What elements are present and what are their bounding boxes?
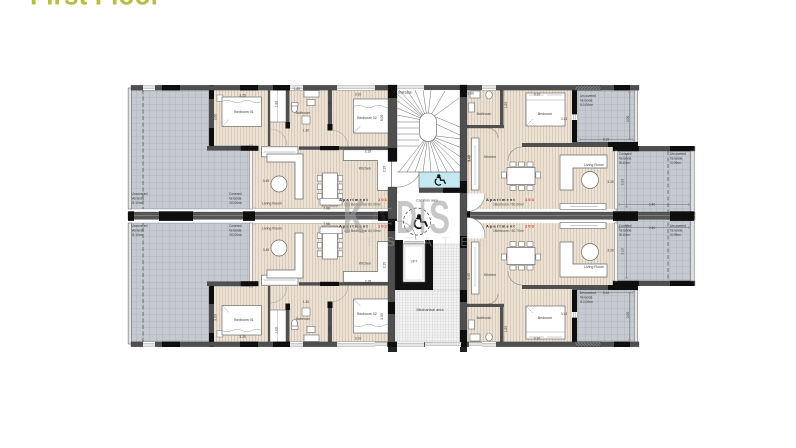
svg-text:3.10: 3.10 [355,337,362,341]
svg-text:Bedroom 01: Bedroom 01 [234,110,254,114]
svg-text:/30.00m²: /30.00m² [229,201,243,205]
svg-text:/8.10m²: /8.10m² [619,161,631,165]
svg-text:3.13: 3.13 [621,179,625,186]
svg-text:5.00: 5.00 [380,115,384,122]
svg-text:Bathroom: Bathroom [477,112,492,116]
svg-text:3.10: 3.10 [603,291,610,295]
svg-text:/4.10m²: /4.10m² [132,233,144,237]
svg-text:/3.99m²: /3.99m² [670,161,682,165]
svg-text:Bedroom 01: Bedroom 01 [234,318,254,322]
svg-text:Uncovered: Uncovered [132,192,148,196]
svg-text:7.98: 7.98 [323,222,330,226]
svg-text:/8.10m²: /8.10m² [619,233,631,237]
svg-text:/10.00m²: /10.00m² [580,300,594,304]
svg-text:Bedroom: Bedroom [538,112,553,116]
svg-text:Covered: Covered [229,224,242,228]
svg-text:1.80: 1.80 [275,101,279,108]
svg-text:Veranda: Veranda [229,228,241,232]
svg-text:Kitchen: Kitchen [484,273,496,277]
svg-text:7.98: 7.98 [323,206,330,210]
svg-text:3.40: 3.40 [649,226,656,230]
svg-text:Kitchen: Kitchen [359,167,371,171]
svg-text:3.40: 3.40 [468,155,472,162]
svg-text:Living Room: Living Room [584,163,604,167]
svg-text:Veranda: Veranda [580,295,592,299]
svg-text:Veranda: Veranda [229,196,241,200]
svg-text:2.35: 2.35 [365,279,372,283]
svg-text:A p a r t m e n t: A p a r t m e n t [486,224,515,229]
svg-text:2.35: 2.35 [365,149,372,153]
svg-text:/3.99m²: /3.99m² [670,233,682,237]
svg-text:1.80: 1.80 [504,326,508,333]
svg-text:3.00: 3.00 [626,312,630,319]
svg-text:3.10: 3.10 [603,138,610,142]
svg-text:2.20: 2.20 [383,166,387,173]
svg-text:1Bedroom / 50.70m²: 1Bedroom / 50.70m² [493,229,525,233]
svg-text:Bathroom: Bathroom [477,316,492,320]
svg-text:3.25: 3.25 [239,335,246,339]
svg-text:Kitchen: Kitchen [484,155,496,159]
svg-text:/4.10m²: /4.10m² [132,201,144,205]
svg-text:3.13: 3.13 [561,117,568,121]
svg-text:Covered: Covered [229,192,242,196]
svg-text:3.10: 3.10 [534,337,541,341]
svg-text:3.00: 3.00 [626,116,630,123]
svg-text:Bedroom 02: Bedroom 02 [357,312,377,316]
svg-text:Veranda: Veranda [670,228,682,232]
svg-text:1 0 3: 1 0 3 [525,224,535,229]
svg-text:Uncovered: Uncovered [580,291,596,295]
svg-text:Bedroom 02: Bedroom 02 [357,116,377,120]
svg-text:3.10: 3.10 [534,93,541,97]
svg-text:1Bedroom / 50.00m²: 1Bedroom / 50.00m² [493,203,525,207]
svg-text:1.30: 1.30 [303,300,310,304]
svg-text:LIFT: LIFT [411,260,418,264]
svg-text:Bathroom: Bathroom [296,317,311,321]
svg-text:1.30: 1.30 [303,129,310,133]
svg-text:Veranda: Veranda [132,196,144,200]
svg-text:Mechanical area: Mechanical area [416,308,444,312]
svg-text:1.80: 1.80 [467,92,474,96]
svg-text:/10.00m²: /10.00m² [580,103,594,107]
svg-text:Veranda: Veranda [619,156,631,160]
svg-text:/30.00m²: /30.00m² [229,233,243,237]
svg-text:3.30: 3.30 [607,180,614,184]
svg-text:Uncovered: Uncovered [580,94,596,98]
svg-text:Living Room: Living Room [262,227,282,231]
svg-text:3.45: 3.45 [263,179,270,183]
svg-text:Veranda: Veranda [619,228,631,232]
svg-text:Uncovered: Uncovered [132,224,148,228]
svg-text:3.45: 3.45 [263,248,270,252]
svg-text:3.25: 3.25 [239,94,246,98]
svg-text:Veranda: Veranda [580,98,592,102]
svg-text:Bathroom: Bathroom [296,111,311,115]
svg-text:2.20: 2.20 [383,262,387,269]
svg-text:5.00: 5.00 [380,313,384,320]
svg-text:3.30: 3.30 [607,249,614,253]
svg-text:1.80: 1.80 [294,87,301,91]
svg-text:1 0 4: 1 0 4 [525,197,535,202]
svg-text:3.60: 3.60 [214,114,218,121]
svg-text:1.80: 1.80 [504,102,508,109]
svg-text:K: K [343,191,365,243]
svg-text:Living Room: Living Room [584,265,604,269]
svg-text:3.13: 3.13 [621,248,625,255]
svg-text:Uncovered: Uncovered [670,152,686,156]
svg-text:3.40: 3.40 [649,203,656,207]
svg-text:3.60: 3.60 [214,314,218,321]
svg-text:A p a r t m e n t: A p a r t m e n t [486,197,515,202]
svg-text:3.40: 3.40 [467,273,471,280]
svg-text:1.80: 1.80 [328,327,332,334]
svg-text:Kitchen: Kitchen [359,262,371,266]
svg-text:Veranda: Veranda [670,156,682,160]
svg-text:1.80: 1.80 [328,101,332,108]
svg-text:Living Room: Living Room [262,202,282,206]
svg-text:Bedroom: Bedroom [538,316,553,320]
svg-text:3.10: 3.10 [355,93,362,97]
svg-text:1.80: 1.80 [275,327,279,334]
svg-text:ESTATES: ESTATES [367,235,499,249]
svg-text:3.13: 3.13 [561,312,568,316]
svg-text:Veranda: Veranda [132,228,144,232]
svg-text:Staircase: Staircase [398,91,412,95]
svg-text:First Floor: First Floor [30,0,161,12]
